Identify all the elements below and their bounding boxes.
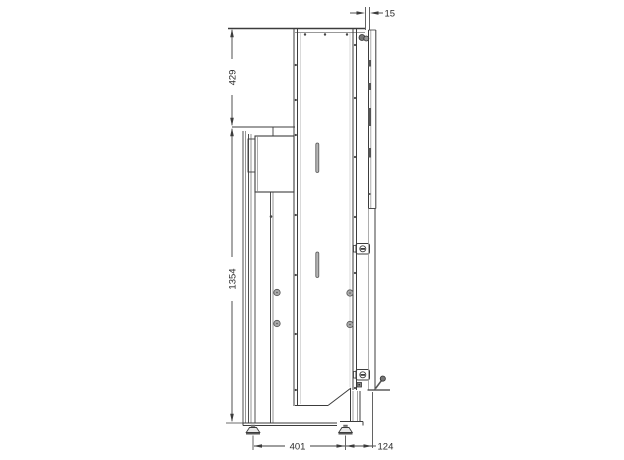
column-fasteners bbox=[270, 215, 280, 326]
main-panel bbox=[294, 28, 357, 406]
lifting-column bbox=[232, 127, 295, 423]
dimension-column-height: 1354 bbox=[226, 128, 244, 423]
panel-rivets-left bbox=[295, 64, 297, 391]
dimension-top-gap: 15 bbox=[350, 7, 395, 30]
bolt-icon bbox=[357, 383, 362, 388]
dim-label-upper-height: 429 bbox=[228, 70, 239, 86]
top-bolt-icon bbox=[359, 35, 369, 42]
leveling-foot-left bbox=[246, 425, 260, 434]
dim-label-base-width: 401 bbox=[290, 442, 306, 453]
dim-label-base-offset: 124 bbox=[378, 442, 394, 453]
panel-rivets-right bbox=[354, 44, 356, 389]
rear-cover bbox=[369, 209, 376, 391]
leveling-foot-right bbox=[339, 425, 353, 434]
base-structure bbox=[243, 388, 363, 426]
dim-label-column-height: 1354 bbox=[228, 268, 239, 289]
drawing-canvas: 15 429 1354 401 124 bbox=[0, 0, 624, 460]
top-screws bbox=[304, 33, 348, 35]
latch-bracket-upper bbox=[354, 244, 370, 255]
motor-housing bbox=[248, 136, 294, 192]
panel-slots bbox=[316, 143, 319, 278]
dimension-upper-height: 429 bbox=[227, 29, 239, 127]
dim-label-top-gap: 15 bbox=[385, 9, 396, 20]
latch-bracket-lower bbox=[354, 370, 370, 381]
top-cover bbox=[228, 29, 365, 33]
dimension-base-width: 401 bbox=[253, 436, 346, 453]
technical-drawing: 15 429 1354 401 124 bbox=[0, 0, 624, 460]
release-lever bbox=[376, 376, 386, 389]
